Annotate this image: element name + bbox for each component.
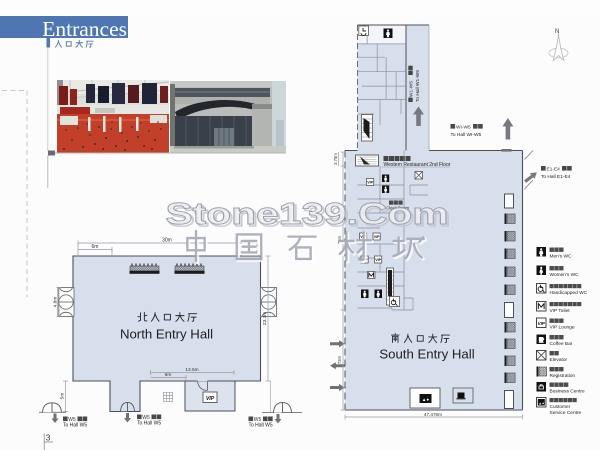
svg-text:Elevator: Elevator — [550, 357, 568, 363]
svg-text:VIP Toilet: VIP Toilet — [550, 308, 571, 314]
svg-text:▲●: ▲● — [538, 402, 544, 406]
svg-text:Service Centre: Service Centre — [550, 410, 582, 416]
svg-text:Customer: Customer — [550, 404, 571, 410]
svg-text:Stone139.Com: Stone139.Com — [166, 196, 449, 231]
svg-text:VIP: VIP — [538, 321, 545, 326]
svg-text:Registration: Registration — [550, 373, 576, 379]
svg-text:Handicapped WC: Handicapped WC — [550, 290, 588, 296]
svg-text:Men's WC: Men's WC — [550, 254, 573, 260]
svg-text:VIP Lounge: VIP Lounge — [550, 325, 575, 331]
svg-text:Coffee Bar: Coffee Bar — [550, 341, 573, 347]
svg-text:Business Centre: Business Centre — [550, 389, 586, 395]
svg-text:Women's WC: Women's WC — [550, 272, 580, 278]
